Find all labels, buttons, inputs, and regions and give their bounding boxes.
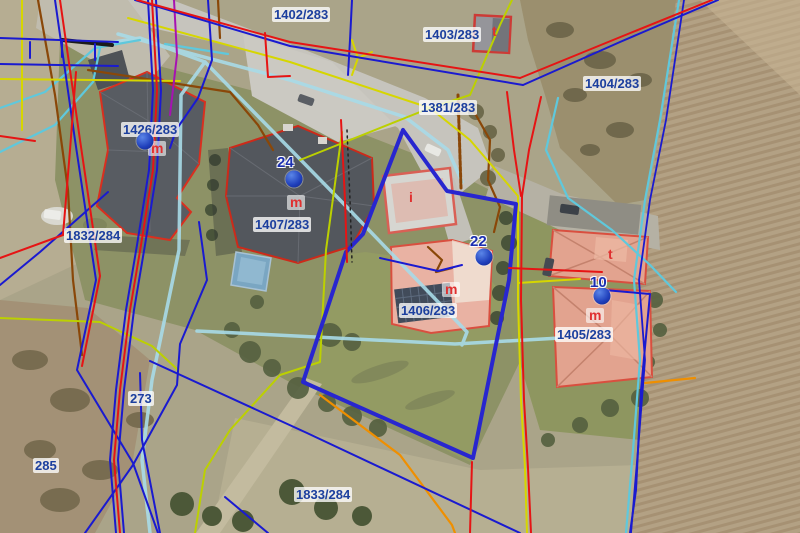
parcel-label-1403-283: 1403/283 bbox=[423, 27, 481, 42]
building-function-label-t: t bbox=[489, 24, 500, 39]
building-function-label-m: m bbox=[586, 308, 604, 323]
building-function-label-t: t bbox=[605, 247, 616, 262]
map-viewport[interactable]: 1402/2831403/2831404/2831381/2831426/283… bbox=[0, 0, 800, 533]
address-point-dot bbox=[286, 171, 303, 188]
parcel-label-1832-284: 1832/284 bbox=[64, 228, 122, 243]
address-number: 22 bbox=[470, 234, 487, 250]
address-number: 24 bbox=[277, 155, 294, 171]
map-annotations: 1402/2831403/2831404/2831381/2831426/283… bbox=[0, 0, 800, 533]
parcel-label-1404-283: 1404/283 bbox=[583, 76, 641, 91]
address-number: 10 bbox=[590, 275, 607, 291]
parcel-label-1402-283: 1402/283 bbox=[272, 7, 330, 22]
parcel-label-1833-284: 1833/284 bbox=[294, 487, 352, 502]
parcel-label-273: 273 bbox=[128, 391, 154, 406]
parcel-label-1405-283: 1405/283 bbox=[555, 327, 613, 342]
address-point-dot bbox=[476, 249, 493, 266]
parcel-label-285: 285 bbox=[33, 458, 59, 473]
building-function-label-m: m bbox=[442, 282, 460, 297]
parcel-label-1407-283: 1407/283 bbox=[253, 217, 311, 232]
building-function-label-i: i bbox=[406, 190, 416, 205]
building-function-label-m: m bbox=[287, 195, 305, 210]
address-point-dot bbox=[137, 133, 154, 150]
parcel-label-1381-283: 1381/283 bbox=[419, 100, 477, 115]
parcel-label-1406-283: 1406/283 bbox=[399, 303, 457, 318]
